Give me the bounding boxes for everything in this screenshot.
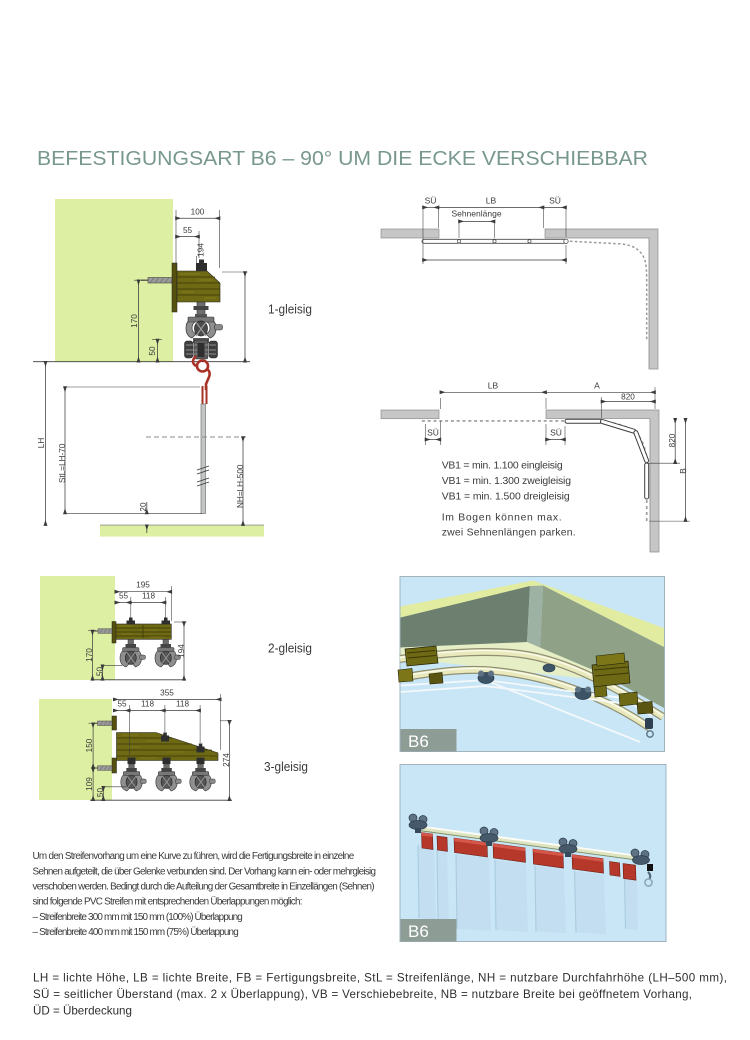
svg-text:B: B [678,468,688,474]
svg-text:170: 170 [130,314,139,328]
svg-text:170: 170 [85,648,94,662]
svg-text:zwei Sehnenlängen parken.: zwei Sehnenlängen parken. [442,527,576,538]
svg-text:verschoben werden. Bedingt dur: verschoben werden. Bedingt durch die Auf… [33,882,375,893]
svg-text:50: 50 [96,788,105,798]
svg-text:SÜ: SÜ [425,196,437,206]
svg-text:Im Bogen können max.: Im Bogen können max. [442,513,562,524]
svg-text:SÜ = seitlicher Überstand (max: SÜ = seitlicher Überstand (max. 2 x Über… [33,988,692,1001]
svg-text:LH = lichte Höhe, LB = lichte: LH = lichte Höhe, LB = lichte Breite, FB… [33,972,727,985]
svg-text:2-gleisig: 2-gleisig [268,641,312,656]
svg-text:LB: LB [486,196,497,206]
svg-text:SÜ: SÜ [549,196,561,206]
svg-text:Sehnenlänge: Sehnenlänge [451,209,501,219]
svg-text:109: 109 [85,777,94,791]
svg-text:sind folgende PVC Streifen mit: sind folgende PVC Streifen mit entsprech… [33,897,303,908]
svg-text:194: 194 [177,644,186,658]
svg-text:LB: LB [488,381,499,391]
svg-text:NH=LH-500: NH=LH-500 [236,464,245,508]
svg-text:118: 118 [142,592,155,601]
svg-text:55: 55 [119,592,129,601]
svg-text:B6: B6 [408,732,429,751]
svg-text:100: 100 [191,208,205,217]
svg-text:Um den Streifenvorhang um eine: Um den Streifenvorhang um eine Kurve zu … [33,851,355,862]
svg-text:VB1 = min. 1.500 dreigleisig: VB1 = min. 1.500 dreigleisig [442,491,570,502]
svg-text:ÜD = Überdeckung: ÜD = Überdeckung [33,1004,132,1017]
svg-text:BEFESTIGUNGSART B6 – 90° UM DI: BEFESTIGUNGSART B6 – 90° UM DIE ECKE VER… [37,147,648,170]
svg-text:150: 150 [85,738,94,752]
svg-text:3-gleisig: 3-gleisig [264,759,308,774]
svg-text:VB1 = min. 1.300 zweigleisig: VB1 = min. 1.300 zweigleisig [442,476,572,487]
svg-text:LH: LH [37,438,46,449]
svg-text:55: 55 [117,700,127,709]
svg-text:Sehnen aufgeteilt, die über Ge: Sehnen aufgeteilt, die über Gelenke verb… [33,866,376,877]
svg-text:355: 355 [160,689,174,698]
svg-text:118: 118 [176,700,189,709]
svg-text:274: 274 [222,753,231,767]
svg-text:820: 820 [668,433,677,447]
svg-text:1-gleisig: 1-gleisig [268,302,312,317]
svg-text:– Streifenbreite 300 mm mit 15: – Streifenbreite 300 mm mit 150 mm (100%… [33,912,243,923]
svg-text:50: 50 [96,667,105,677]
svg-text:SÜ: SÜ [427,428,439,438]
svg-text:A: A [594,381,600,391]
svg-text:820: 820 [621,393,635,402]
svg-text:55: 55 [183,226,193,235]
svg-text:118: 118 [141,700,154,709]
svg-text:194: 194 [197,243,206,257]
svg-text:– Streifenbreite 400 mm mit 15: – Streifenbreite 400 mm mit 150 mm (75%)… [33,927,239,938]
svg-text:VB1 = min. 1.100 eingleisig: VB1 = min. 1.100 eingleisig [442,461,563,472]
svg-text:20: 20 [139,502,148,512]
svg-text:50: 50 [148,346,157,356]
svg-text:SÜ: SÜ [550,428,562,438]
svg-text:B6: B6 [408,922,429,941]
svg-text:195: 195 [136,581,150,590]
svg-text:StL=LH-70: StL=LH-70 [58,443,67,483]
